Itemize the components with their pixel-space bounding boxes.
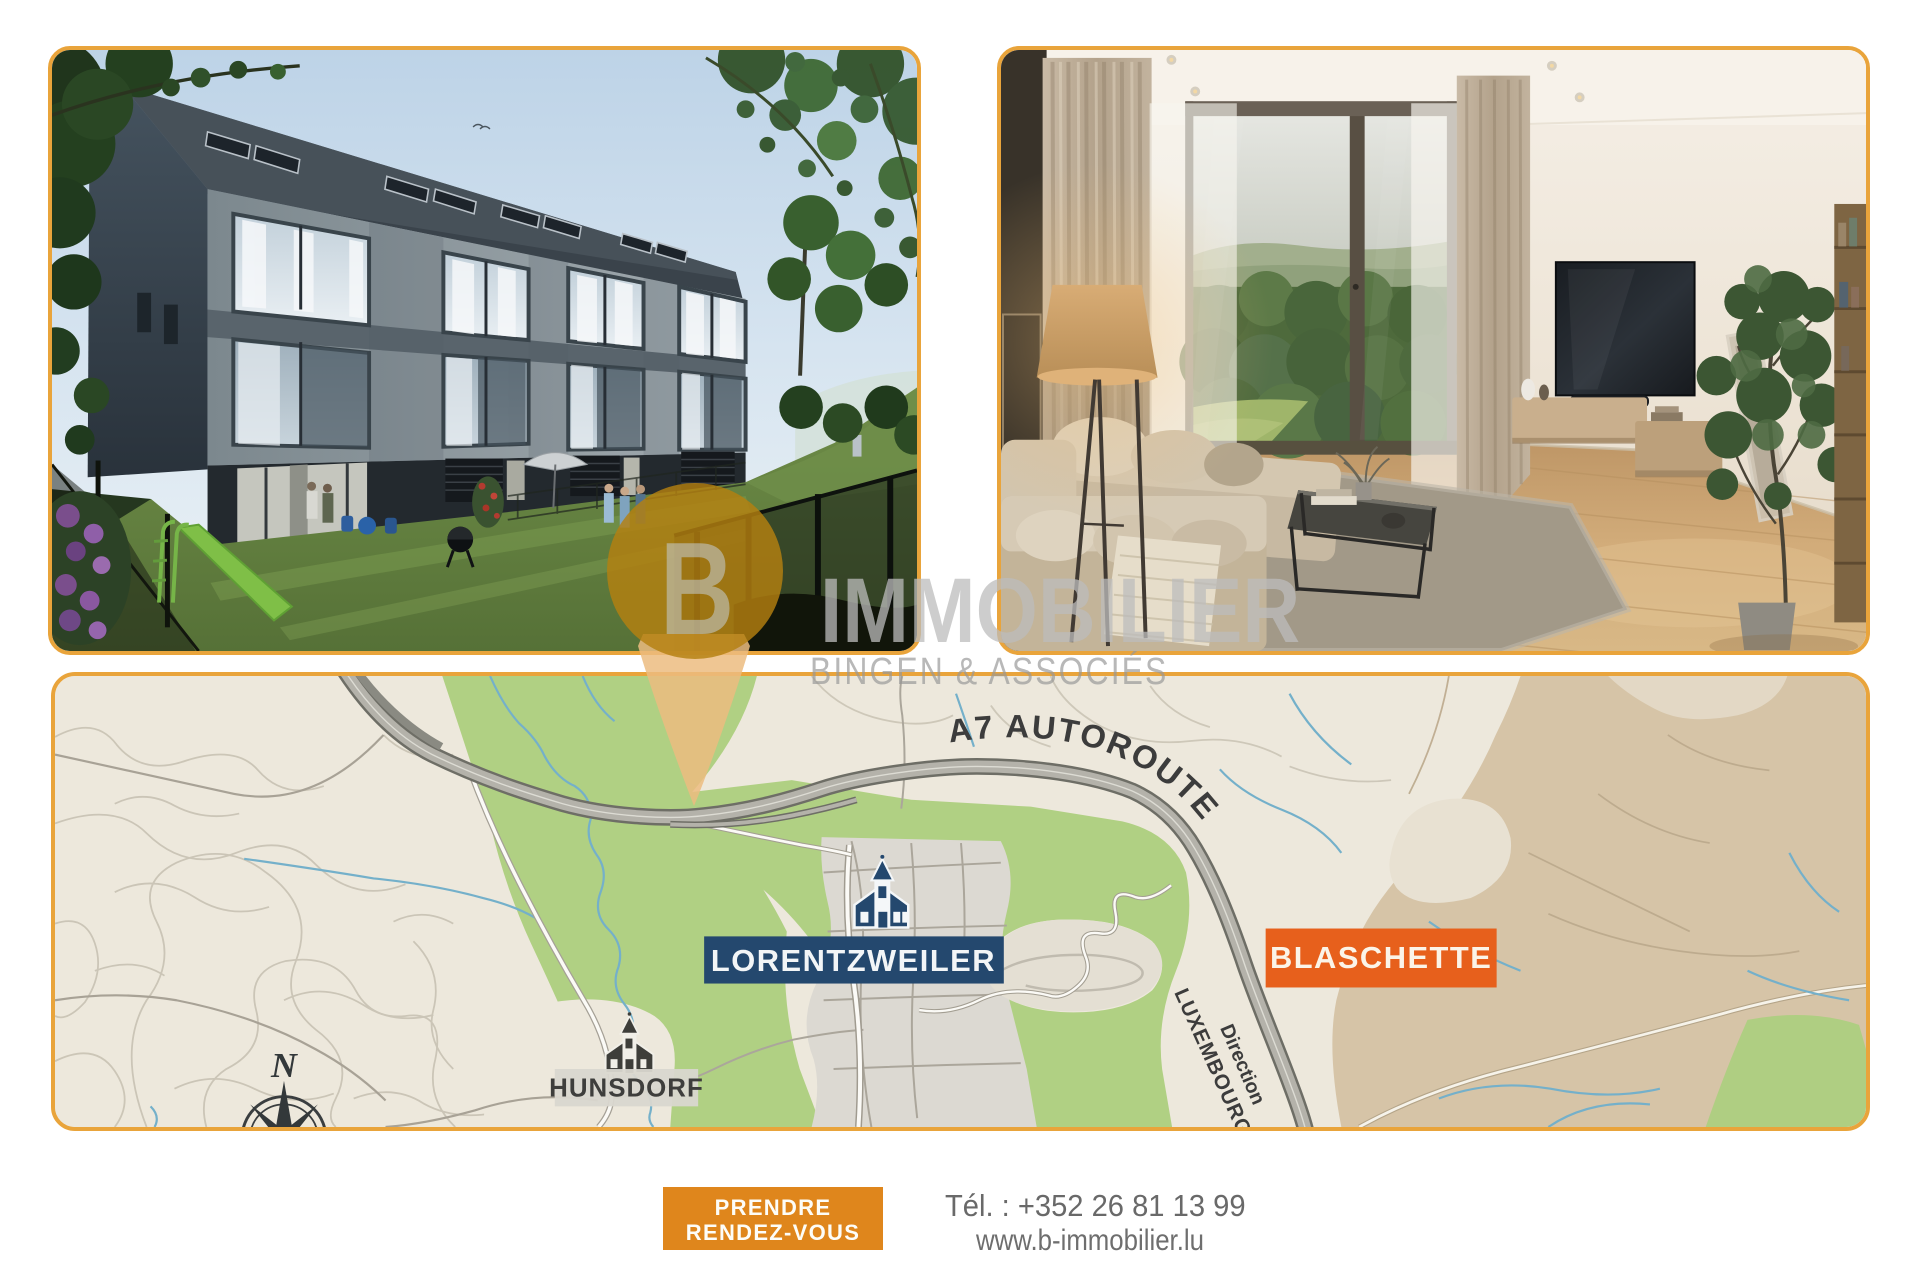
svg-text:LORENTZWEILER: LORENTZWEILER	[711, 944, 996, 978]
svg-text:N: N	[270, 1045, 298, 1085]
svg-text:HUNSDORF: HUNSDORF	[549, 1075, 704, 1103]
svg-text:BLASCHETTE: BLASCHETTE	[1270, 941, 1492, 975]
